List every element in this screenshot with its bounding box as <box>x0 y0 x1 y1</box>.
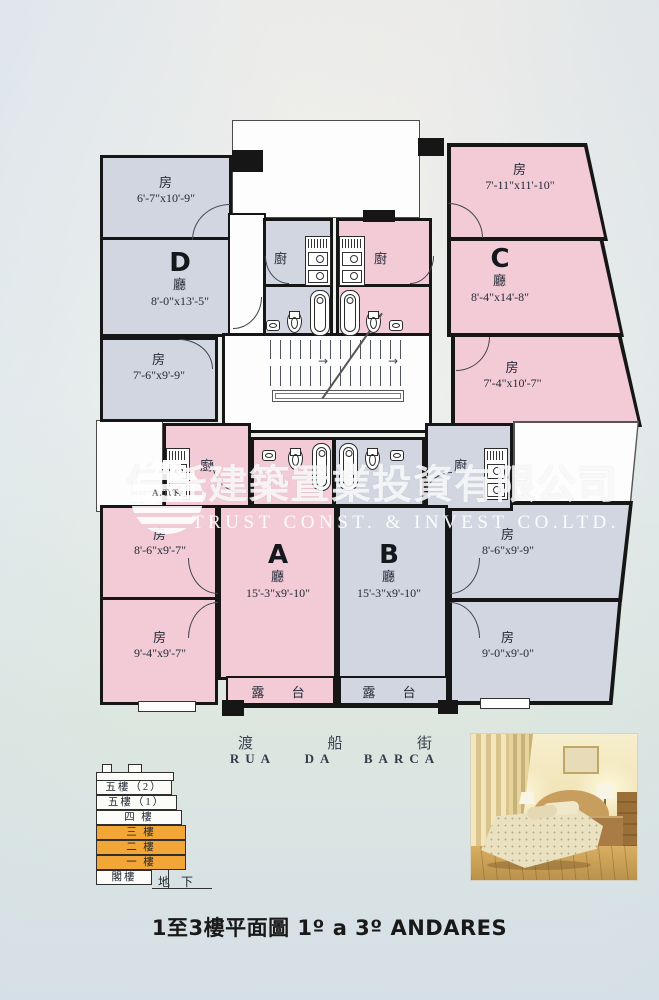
legend-floor-5-1: 五樓（1） <box>96 795 177 810</box>
room-label-c1: 房 7'-11"x11'-10" <box>460 162 580 193</box>
kitchen-label-b: 廚 <box>454 455 467 474</box>
room-name: 房 <box>104 527 216 543</box>
hall-name: 廳 <box>440 273 560 289</box>
photo-picture-frame <box>563 746 599 774</box>
room-dims: 8'-6"x9'-7" <box>104 543 216 558</box>
room-dims: 9'-0"x9'-0" <box>452 646 564 661</box>
photo-lamp <box>519 792 535 804</box>
unit-d-hall-label: D 廳 8'-0"x13'-5" <box>120 250 240 309</box>
staircase: →→ <box>270 340 404 386</box>
sink <box>389 320 403 331</box>
legend-floor-2: 二 樓 <box>96 840 186 855</box>
unit-letter: A <box>222 542 334 569</box>
room-label-c2: 房 7'-4"x10'-7" <box>455 360 570 391</box>
hall-dims: 8'-0"x13'-5" <box>120 294 240 309</box>
bathtub <box>340 290 360 336</box>
street-name-latin: RUA DA BARCA <box>185 751 485 767</box>
room-name: 房 <box>452 527 564 543</box>
sink <box>262 450 276 461</box>
street-char: 船 <box>327 732 342 753</box>
window-notch <box>480 698 530 709</box>
hall-dims: 8'-4"x14'-8" <box>440 290 560 305</box>
room-label-d1: 房 6'-7"x10'-9" <box>110 175 222 206</box>
stove <box>339 236 365 286</box>
unit-letter: D <box>120 250 240 277</box>
unit-b-hall-label: B 廳 15'-3"x9'-10" <box>334 542 444 601</box>
sink <box>390 450 404 461</box>
room-name: 房 <box>455 360 570 376</box>
window-notch <box>138 701 196 712</box>
stair-landing <box>272 390 404 402</box>
room-label-b1: 房 8'-6"x9'-9" <box>452 527 564 558</box>
lightwell-left <box>96 420 163 512</box>
page-caption: 1至3樓平面圖 1º a 3º ANDARES <box>0 912 659 942</box>
balcony-label-a: 露 台 <box>232 682 336 701</box>
stove <box>484 448 508 500</box>
unit-a-hall-label: A 廳 15'-3"x9'-10" <box>222 542 334 601</box>
wall-block <box>222 700 244 716</box>
hall-dims: 15'-3"x9'-10" <box>222 586 334 601</box>
room-label-a2: 房 9'-4"x9'-7" <box>104 630 216 661</box>
legend-ground-step <box>152 870 169 888</box>
legend-floor-4: 四 樓 <box>96 810 182 825</box>
room-label-d2: 房 7'-6"x9'-9" <box>104 352 214 383</box>
room-name: 房 <box>104 630 216 646</box>
room-label-a1: 房 8'-6"x9'-7" <box>104 527 216 558</box>
room-name: 房 <box>452 630 564 646</box>
sink <box>266 320 280 331</box>
hall-name: 廳 <box>120 277 240 293</box>
street-char: 街 <box>417 732 432 753</box>
kitchen-label-a: 廚 <box>200 455 213 474</box>
wall-block <box>363 210 395 222</box>
room-dims: 7'-4"x10'-7" <box>455 376 570 391</box>
wall-block <box>438 700 458 714</box>
balcony-label-b: 露 台 <box>343 682 447 701</box>
stove <box>166 448 190 500</box>
room-dims: 9'-4"x9'-7" <box>104 646 216 661</box>
room-label-b2: 房 9'-0"x9'-0" <box>452 630 564 661</box>
room-name: 房 <box>110 175 222 191</box>
room-dims: 7'-11"x11'-10" <box>460 178 580 193</box>
kitchen-label-d: 廚 <box>274 248 287 267</box>
room-name: 房 <box>104 352 214 368</box>
room-dims: 8'-6"x9'-9" <box>452 543 564 558</box>
hall-name: 廳 <box>334 569 444 585</box>
lightwell-right <box>513 421 639 513</box>
legend-mezzanine: 閣樓 <box>96 870 152 885</box>
kitchen-label-c: 廚 <box>374 248 387 267</box>
room-dims: 7'-6"x9'-9" <box>104 368 214 383</box>
unit-letter: C <box>440 246 560 273</box>
brochure-page: →→ <box>0 0 659 1000</box>
legend-floor-1: 一 樓 <box>96 855 186 870</box>
hall-dims: 15'-3"x9'-10" <box>334 586 444 601</box>
wall-block <box>418 138 444 156</box>
bathtub <box>312 443 331 491</box>
wall-block <box>232 150 263 172</box>
stove <box>305 236 331 286</box>
bedroom-photo <box>470 733 638 881</box>
bathtub <box>339 443 358 491</box>
room-dims: 6'-7"x10'-9" <box>110 191 222 206</box>
hall-name: 廳 <box>222 569 334 585</box>
unit-c-hall-label: C 廳 8'-4"x14'-8" <box>440 246 560 305</box>
street-name-chinese: 渡 船 街 <box>238 732 432 753</box>
room-name: 房 <box>460 162 580 178</box>
legend-floor-3: 三 樓 <box>96 825 186 840</box>
unit-letter: B <box>334 542 444 569</box>
street-char: 渡 <box>238 732 253 753</box>
legend-floor-5-2: 五樓（2） <box>96 780 172 795</box>
bathtub <box>310 290 330 336</box>
legend-ground-line <box>152 888 212 889</box>
